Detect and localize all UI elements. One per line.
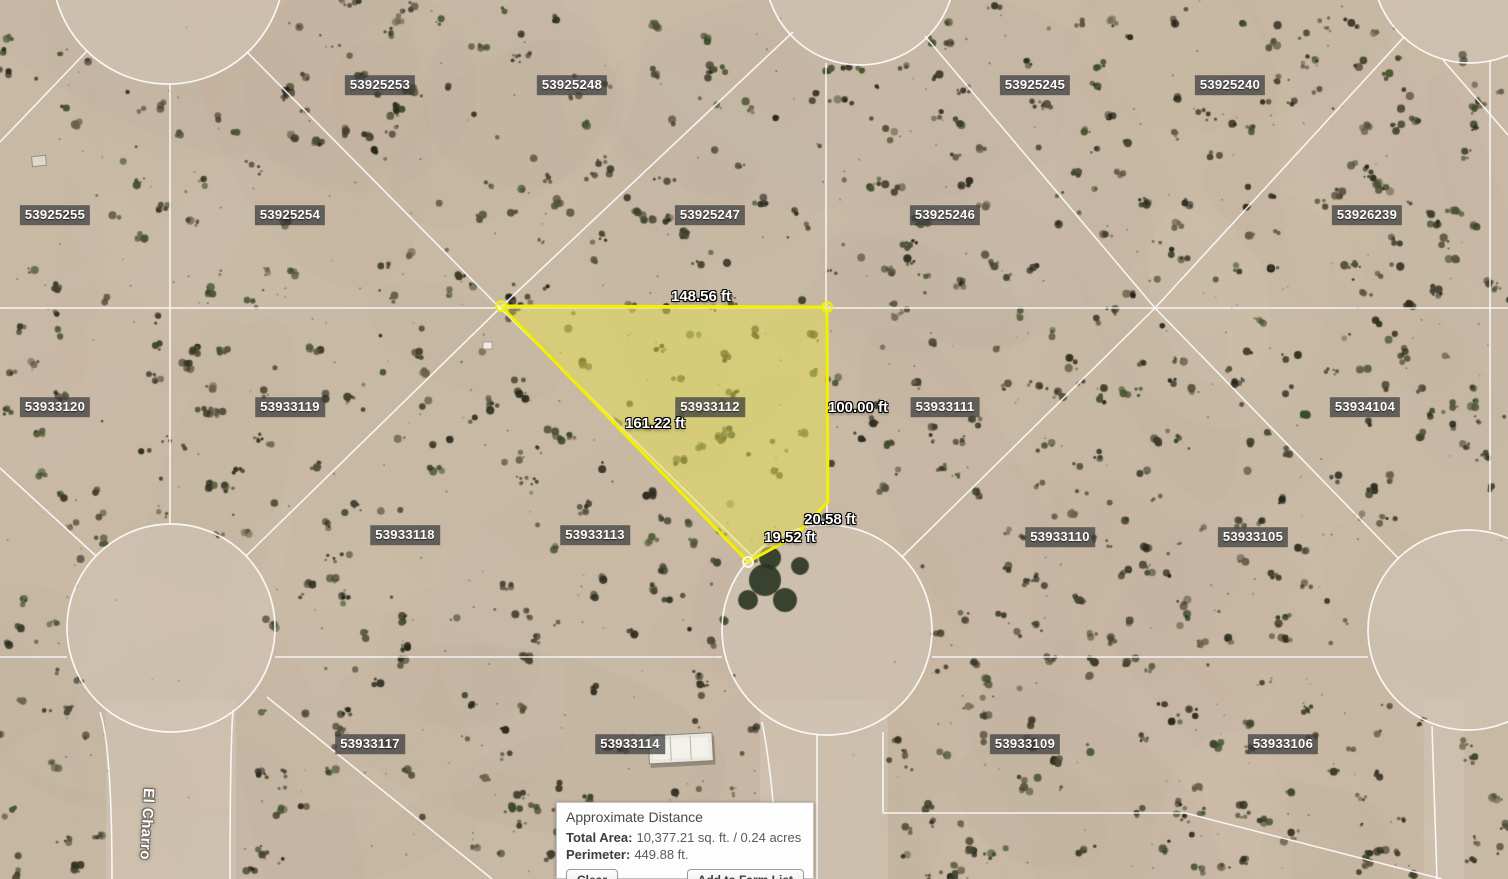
measurement-info-panel: Approximate Distance Total Area:10,377.2… bbox=[556, 802, 814, 879]
measurement-label: 148.56 ft bbox=[671, 289, 731, 306]
perimeter-row: Perimeter:449.88 ft. bbox=[566, 846, 804, 864]
panel-buttons: Clear Add to Farm List bbox=[566, 869, 804, 879]
total-area-label: Total Area: bbox=[566, 830, 632, 845]
clear-button[interactable]: Clear bbox=[566, 869, 618, 879]
add-to-farm-list-button[interactable]: Add to Farm List bbox=[687, 869, 804, 879]
measurement-label: 20.58 ft bbox=[804, 512, 856, 529]
measurement-label-layer: 148.56 ft100.00 ft161.22 ft20.58 ft19.52… bbox=[0, 0, 1508, 879]
perimeter-value: 449.88 ft. bbox=[634, 847, 688, 862]
panel-title: Approximate Distance bbox=[566, 808, 804, 827]
total-area-value: 10,377.21 sq. ft. / 0.24 acres bbox=[636, 830, 801, 845]
measurement-label: 161.22 ft bbox=[625, 416, 685, 433]
measurement-label: 100.00 ft bbox=[828, 400, 888, 417]
street-name-label: El Charro bbox=[136, 788, 156, 861]
total-area-row: Total Area:10,377.21 sq. ft. / 0.24 acre… bbox=[566, 829, 804, 847]
measurement-label: 19.52 ft bbox=[764, 530, 816, 547]
perimeter-label: Perimeter: bbox=[566, 847, 630, 862]
map-viewport[interactable]: 5392525353925248539252455392524053925255… bbox=[0, 0, 1508, 879]
